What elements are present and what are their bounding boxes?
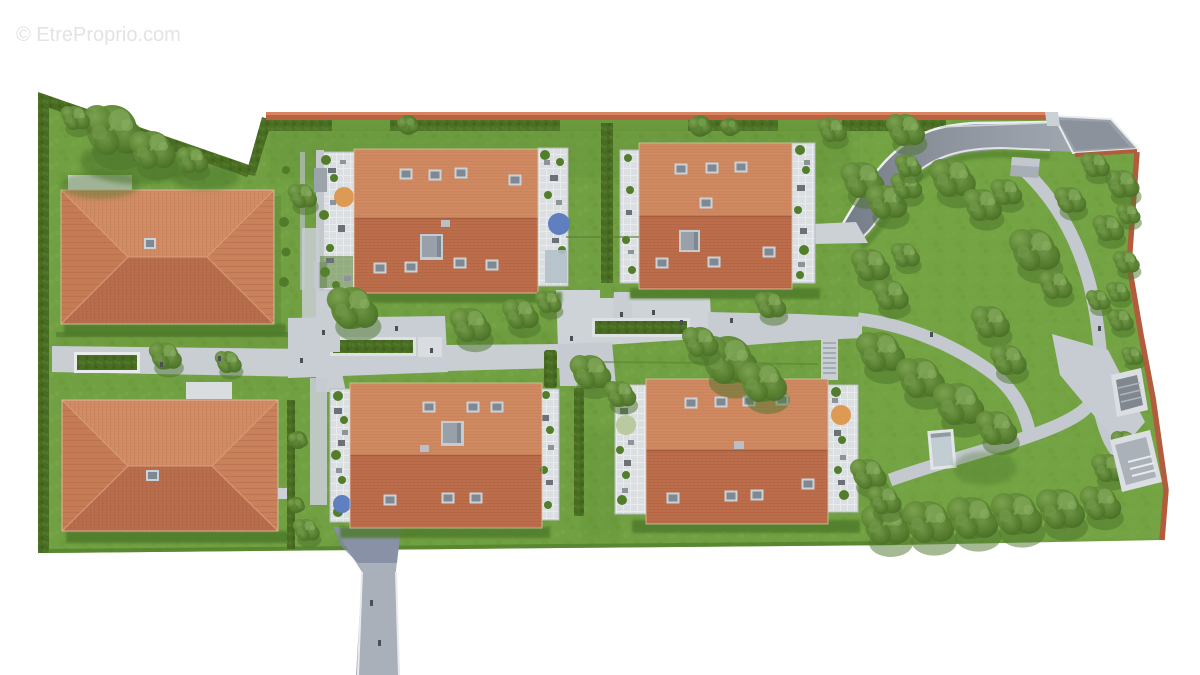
svg-text:© EtreProprio.com: © EtreProprio.com (16, 24, 181, 46)
